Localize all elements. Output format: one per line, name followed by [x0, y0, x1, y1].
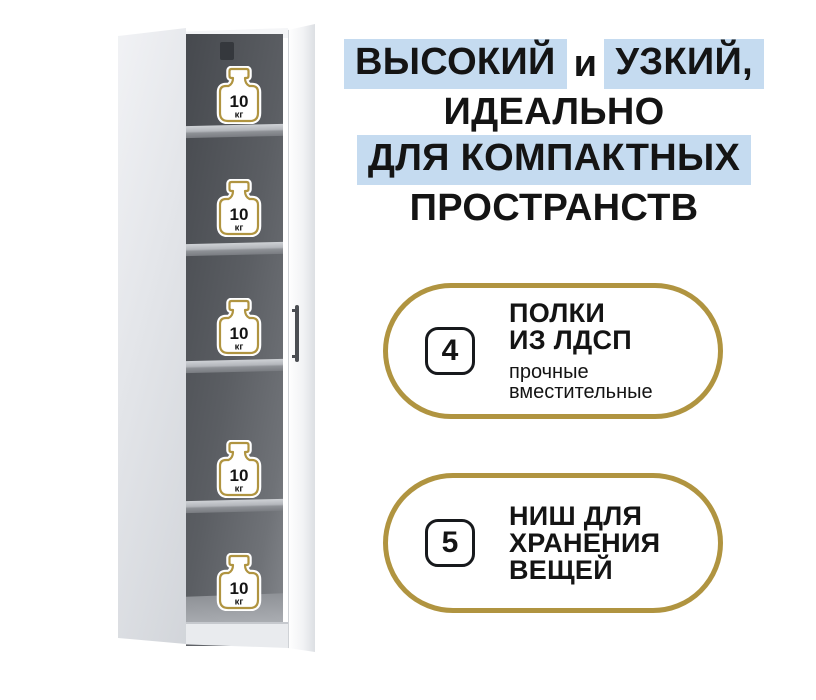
weight-10kg-icon: 10 кг [213, 553, 265, 611]
weight-10kg-icon: 10 кг [213, 440, 265, 498]
weight-unit-label: кг [235, 484, 244, 495]
weight-capacity-icon: 10 кг [213, 179, 265, 237]
weight-unit-label: кг [235, 110, 244, 121]
feature-badge-niches: 5 НИШ ДЛЯ ХРАНЕНИЯ ВЕЩЕЙ [383, 473, 723, 613]
weight-unit-label: кг [235, 597, 244, 608]
weight-capacity-icon: 10 кг [213, 440, 265, 498]
cabinet-base [186, 622, 288, 648]
weight-value-label: 10 [230, 466, 249, 485]
feature-badge-shelves: 4 ПОЛКИ ИЗ ЛДСП прочные вместительные [383, 283, 723, 419]
headline-highlight: ДЛЯ КОМПАКТНЫХ [357, 135, 751, 185]
headline-highlight: ВЫСОКИЙ [344, 39, 567, 89]
feature-title-line: ВЕЩЕЙ [509, 557, 660, 584]
weight-value-label: 10 [230, 92, 249, 111]
cabinet-side-panel [118, 28, 186, 644]
door-handle [295, 305, 299, 362]
feature-title-line: ПОЛКИ [509, 300, 653, 327]
product-infographic: 10 кг 10 кг 10 кг 10 [0, 0, 816, 700]
weight-10kg-icon: 10 кг [213, 179, 265, 237]
headline-line-2: ИДЕАЛЬНО [336, 88, 772, 136]
cabinet-illustration: 10 кг 10 кг 10 кг 10 [118, 22, 316, 670]
cabinet-shelf [186, 242, 283, 256]
feature-title-line: НИШ ДЛЯ [509, 503, 660, 530]
headline-highlight: УЗКИЙ, [604, 39, 764, 89]
headline-line-1: ВЫСОКИЙ и УЗКИЙ, [336, 40, 772, 88]
feature-subtitle-line: прочные [509, 362, 653, 382]
feature-text: НИШ ДЛЯ ХРАНЕНИЯ ВЕЩЕЙ [509, 503, 660, 584]
headline-line-4: ПРОСТРАНСТВ [336, 184, 772, 232]
headline-line-3: ДЛЯ КОМПАКТНЫХ [336, 136, 772, 184]
weight-value-label: 10 [230, 579, 249, 598]
weight-10kg-icon: 10 кг [213, 298, 265, 356]
weight-value-label: 10 [230, 324, 249, 343]
feature-number: 4 [425, 327, 475, 375]
feature-subtitle-line: вместительные [509, 382, 653, 402]
headline-text: ПРОСТРАНСТВ [410, 187, 699, 230]
feature-text: ПОЛКИ ИЗ ЛДСП прочные вместительные [509, 300, 653, 402]
cabinet-door [288, 24, 315, 652]
weight-capacity-icon: 10 кг [213, 66, 265, 124]
cabinet-shelf [186, 124, 283, 138]
feature-number: 5 [425, 519, 475, 567]
headline-block: ВЫСОКИЙ и УЗКИЙ, ИДЕАЛЬНО ДЛЯ КОМПАКТНЫХ… [336, 40, 772, 232]
weight-capacity-icon: 10 кг [213, 298, 265, 356]
feature-title-line: ИЗ ЛДСП [509, 327, 653, 354]
weight-10kg-icon: 10 кг [213, 66, 265, 124]
headline-text: ИДЕАЛЬНО [443, 91, 664, 134]
weight-capacity-icon: 10 кг [213, 553, 265, 611]
weight-unit-label: кг [235, 342, 244, 353]
feature-title-line: ХРАНЕНИЯ [509, 530, 660, 557]
headline-conjunction: и [574, 43, 598, 86]
weight-value-label: 10 [230, 205, 249, 224]
door-hinge [220, 42, 234, 60]
weight-unit-label: кг [235, 223, 244, 234]
cabinet-shelf [186, 359, 283, 373]
cabinet-shelf [186, 499, 283, 513]
